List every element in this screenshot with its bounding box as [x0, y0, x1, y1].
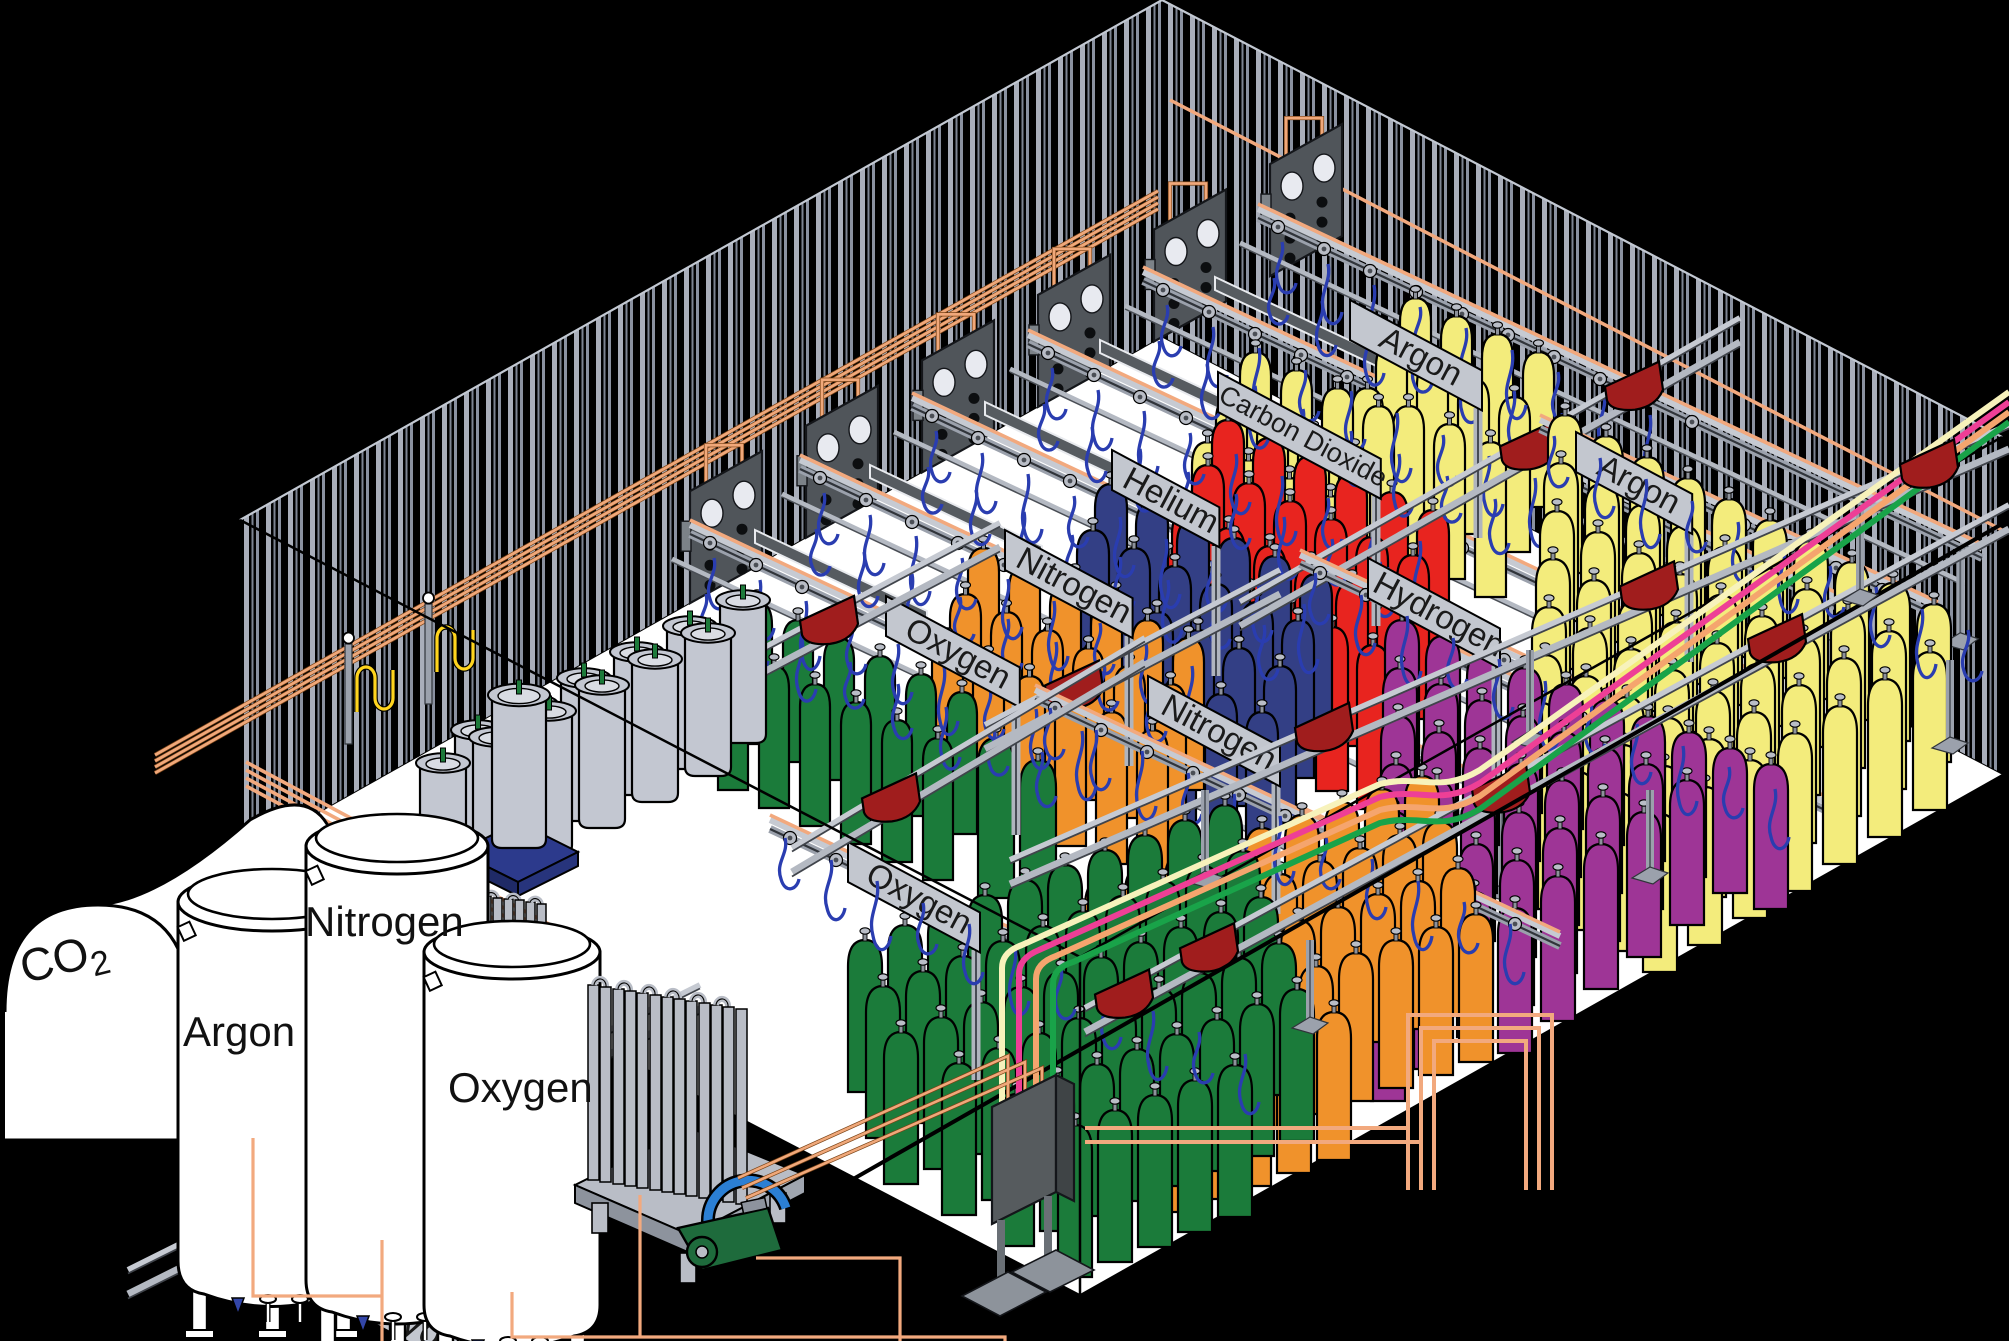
svg-text:Nitrogen: Nitrogen [305, 898, 464, 945]
svg-text:Oxygen: Oxygen [448, 1064, 593, 1111]
svg-text:Argon: Argon [183, 1008, 295, 1055]
